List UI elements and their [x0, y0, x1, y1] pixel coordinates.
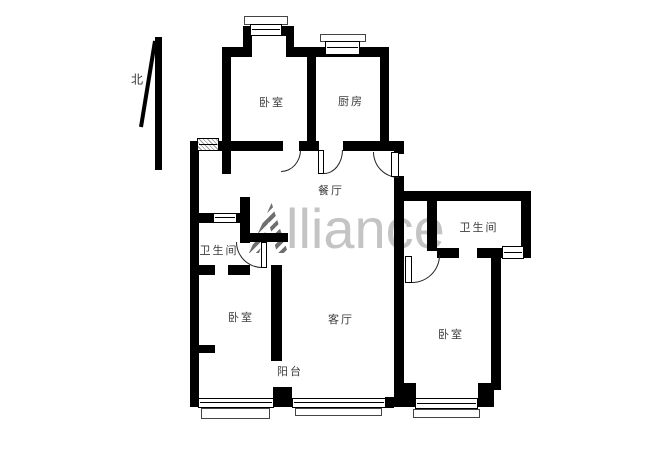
room-label-balcony: 阳台: [277, 363, 303, 379]
room-label-bedroom-bottom-right: 卧室: [438, 326, 464, 342]
wall-segment: [380, 47, 389, 151]
window-symbol: [250, 24, 282, 36]
room-label-bedroom-bottom-left: 卧室: [228, 309, 254, 325]
wall-segment: [437, 248, 459, 258]
room-label-dining-room: 餐厅: [318, 182, 344, 198]
wall-segment: [222, 47, 231, 174]
wall-segment: [242, 233, 288, 242]
door-swing-arc: [324, 150, 343, 174]
wall-segment: [491, 257, 501, 390]
room-label-bedroom-top-left: 卧室: [259, 94, 285, 110]
wall-segment: [228, 265, 250, 275]
wall-segment: [427, 191, 437, 251]
railing-outline: [413, 409, 480, 418]
wall-segment: [222, 141, 283, 151]
room-label-kitchen: 厨房: [338, 93, 364, 109]
door-swing-arc: [412, 255, 440, 283]
watermark-text: lliance: [286, 201, 445, 257]
wall-segment: [385, 397, 394, 408]
door-leaf: [261, 242, 267, 268]
window-symbol: [213, 213, 237, 223]
room-label-living-room: 客厅: [328, 311, 354, 327]
window-symbol: [292, 398, 386, 408]
railing-outline: [201, 408, 270, 419]
wall-segment: [478, 383, 494, 407]
wall-segment: [190, 265, 215, 275]
north-label: 北: [131, 71, 143, 88]
window-symbol: [198, 398, 274, 408]
railing-outline: [295, 408, 382, 416]
door-leaf: [391, 152, 399, 177]
wall-segment: [394, 176, 404, 256]
wall-segment: [190, 345, 215, 353]
north-arrow-icon: [125, 28, 175, 173]
wall-segment: [394, 191, 531, 201]
window-symbol: [325, 41, 360, 55]
wall-segment: [271, 265, 282, 361]
floor-plan-canvas: lliance 北 卧室 厨房 餐厅 卫生间 卫生间 卧室 客厅 卧室 阳台: [0, 0, 650, 450]
door-leaf: [405, 256, 412, 283]
room-label-bathroom-left: 卫生间: [200, 242, 239, 258]
window-symbol: [197, 138, 219, 151]
door-swing-arc: [281, 150, 301, 172]
door-leaf: [318, 150, 324, 174]
window-symbol: [502, 246, 524, 259]
wall-segment: [307, 47, 316, 151]
room-label-bathroom-right: 卫生间: [460, 219, 499, 235]
wall-segment: [273, 387, 292, 407]
wall-segment: [299, 141, 319, 151]
window-symbol: [415, 398, 478, 409]
